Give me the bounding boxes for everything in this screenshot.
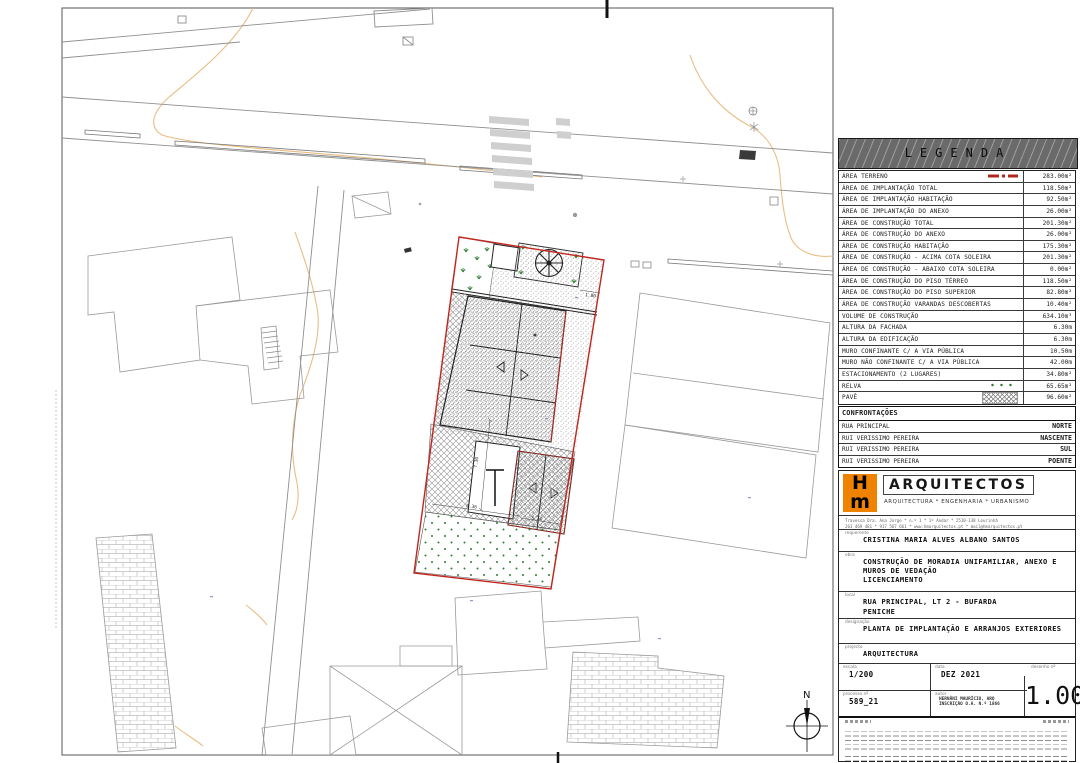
confrontacoes-row: RUI VERISSIMO PEREIRA POENTE xyxy=(839,456,1075,468)
legend-row: ESTACIONAMENTO (2 LUGARES) 34.80m² xyxy=(839,369,1075,381)
legend-row: VOLUME DE CONSTRUÇÃO 634.10m³ xyxy=(839,311,1075,323)
legend-header: LEGENDA xyxy=(838,138,1078,169)
legend-row-value: 283.00m² xyxy=(1023,171,1075,182)
desenho-label-cell: desenho nº xyxy=(1027,664,1077,676)
autor-cell: autor HERNÂNI MAURÍCIO, ARQ INSCRIÇÃO O.… xyxy=(931,690,1027,716)
legend-row-label: ÁREA DE CONSTRUÇÃO TOTAL xyxy=(839,218,1023,229)
legend-row: MURO CONFINANTE C/ A VIA PÚBLICA 10.50m xyxy=(839,346,1075,358)
legend-row-label: MURO CONFINANTE C/ A VIA PÚBLICA xyxy=(839,346,1023,357)
legend-row-value: 34.80m² xyxy=(1023,369,1075,380)
drawing-sheet: 7.30 8.36 3.34 1.80 N LEGENDA ÁREA TERRE… xyxy=(0,0,1080,763)
legend-row-label: ÁREA DE CONSTRUÇÃO DO PISO SUPERIOR xyxy=(839,287,1023,298)
confrontacoes-row: RUI VERISSIMO PEREIRA SUL xyxy=(839,444,1075,456)
legend-row-label: ÁREA DE IMPLANTAÇÃO TOTAL xyxy=(839,183,1023,194)
legend-row-value: 6.30m xyxy=(1023,322,1075,333)
legend-row-value: 6.30m xyxy=(1023,334,1075,345)
legend-row: MURO NÃO CONFINANTE C/ A VIA PÚBLICA 42.… xyxy=(839,357,1075,369)
legend-swatch xyxy=(982,392,1018,404)
legend-row-value: 10.40m² xyxy=(1023,299,1075,310)
legend-row: ÁREA DE CONSTRUÇÃO TOTAL 201.30m² xyxy=(839,218,1075,230)
legend-row-value: 634.10m³ xyxy=(1023,311,1075,322)
projecto-section: projecto ARQUITECTURA xyxy=(839,643,1075,663)
legend-row: ÁREA DE CONSTRUÇÃO DO ANEXO 26.00m² xyxy=(839,229,1075,241)
legend-row-value: 96.60m² xyxy=(1023,392,1075,404)
legend-row: ÁREA DE CONSTRUÇÃO DO PISO TÉRREO 118.50… xyxy=(839,276,1075,288)
requerente-section: requerente CRISTINA MARIA ALVES ALBANO S… xyxy=(839,529,1075,551)
legend-row: ALTURA DA EDIFICAÇÃO 6.30m xyxy=(839,334,1075,346)
data-cell: data DEZ 2021 xyxy=(931,664,1027,690)
legend-row-label: PAVÊ xyxy=(839,392,1023,404)
legend-row-value: 82.80m² xyxy=(1023,287,1075,298)
legend-row: ALTURA DA FACHADA 6.30m xyxy=(839,322,1075,334)
legend-row: PAVÊ 96.60m² xyxy=(839,392,1075,404)
legend-row: RELVA 65.65m² xyxy=(839,381,1075,393)
firm-tagline: ARQUITECTURA * ENGENHARIA * URBANISMO xyxy=(884,499,1029,505)
legend-row-label: ÁREA DE CONSTRUÇÃO VARANDAS DESCOBERTAS xyxy=(839,299,1023,310)
sheet-title: PLANTA DE IMPLANTAÇÃO E ARRANJOS EXTERIO… xyxy=(863,625,1069,635)
legend-row: ÁREA DE IMPLANTAÇÃO TOTAL 118.50m² xyxy=(839,183,1075,195)
legend-row-label: MURO NÃO CONFINANTE C/ A VIA PÚBLICA xyxy=(839,357,1023,368)
legend-row-label: ÁREA DE CONSTRUÇÃO - ACIMA COTA SOLEIRA xyxy=(839,252,1023,263)
title-block-column: LEGENDA ÁREA TERRENO 283.00m² ÁREA DE IM… xyxy=(838,0,1078,763)
escala-cell: escala 1/200 xyxy=(839,664,931,690)
designacao-section: designação PLANTA DE IMPLANTAÇÃO E ARRAN… xyxy=(839,618,1075,643)
fine-print-paragraph xyxy=(845,755,1069,763)
legend-row-value: 118.50m² xyxy=(1023,276,1075,287)
fine-print-paragraph xyxy=(845,731,1069,751)
micro-labels-row xyxy=(839,716,1075,728)
north-arrow: N xyxy=(786,690,828,752)
crosswalk xyxy=(489,116,571,191)
legend-row-value: 26.00m² xyxy=(1023,229,1075,240)
firm-contact: Travessa Dra. Ana Jorge * n.º 1 * 1º And… xyxy=(839,515,1075,529)
stairs-symbol xyxy=(261,326,283,370)
legend-row-label: ÁREA DE IMPLANTAÇÃO HABITAÇÃO xyxy=(839,194,1023,205)
legend-row-value: 92.50m² xyxy=(1023,194,1075,205)
legend-row-label: ÁREA DE CONSTRUÇÃO DO PISO TÉRREO xyxy=(839,276,1023,287)
legend-row-label: ÁREA TERRENO xyxy=(839,171,1023,182)
tree-symbol xyxy=(536,250,563,277)
legend-row-value: 65.65m² xyxy=(1023,381,1075,392)
legend-row-label: ÁREA DE IMPLANTAÇÃO DO ANEXO xyxy=(839,206,1023,217)
legend-row-label: ÁREA DE CONSTRUÇÃO DO ANEXO xyxy=(839,229,1023,240)
legend-row: ÁREA DE CONSTRUÇÃO HABITAÇÃO 175.30m² xyxy=(839,241,1075,253)
legend-row-value: 0.00m² xyxy=(1023,264,1075,275)
neighbour-parcels-right xyxy=(612,293,830,558)
legend-row-label: VOLUME DE CONSTRUÇÃO xyxy=(839,311,1023,322)
legend-row-value: 175.30m² xyxy=(1023,241,1075,252)
title-block: Hm ARQUITECTOS ARQUITECTURA * ENGENHARIA… xyxy=(838,470,1076,762)
legend-row-label: ESTACIONAMENTO (2 LUGARES) xyxy=(839,369,1023,380)
legend-row-value: 118.50m² xyxy=(1023,183,1075,194)
legend-row: ÁREA DE IMPLANTAÇÃO DO ANEXO 26.00m² xyxy=(839,206,1075,218)
firm-block: Hm ARQUITECTOS ARQUITECTURA * ENGENHARIA… xyxy=(839,471,1075,515)
north-label: N xyxy=(803,690,810,701)
confrontacoes-table: CONFRONTAÇÕES RUA PRINCIPAL NORTE RUI VE… xyxy=(838,406,1076,468)
firm-logo: Hm xyxy=(843,474,877,512)
legend-table: ÁREA TERRENO 283.00m² ÁREA DE IMPLANTAÇÃ… xyxy=(838,170,1076,405)
legend-row-value: 26.00m² xyxy=(1023,206,1075,217)
obra-section: obra CONSTRUÇÃO DE MORADIA UNIFAMILIAR, … xyxy=(839,551,1075,591)
legend-row-label: ALTURA DA FACHADA xyxy=(839,322,1023,333)
micro-label xyxy=(1043,720,1069,723)
legend-row: ÁREA DE CONSTRUÇÃO - ACIMA COTA SOLEIRA … xyxy=(839,252,1075,264)
firm-name: ARQUITECTOS xyxy=(883,475,1034,495)
legend-row-value: 10.50m xyxy=(1023,346,1075,357)
legend-row: ÁREA DE CONSTRUÇÃO VARANDAS DESCOBERTAS … xyxy=(839,299,1075,311)
micro-label xyxy=(845,720,871,723)
legend-row-value: 201.30m² xyxy=(1023,252,1075,263)
legend-swatch xyxy=(988,381,1018,390)
legend-row-value: 201.30m² xyxy=(1023,218,1075,229)
processo-cell: processo nº 589_21 xyxy=(839,690,931,716)
legend-row-value: 42.00m xyxy=(1023,357,1075,368)
confrontacoes-title: CONFRONTAÇÕES xyxy=(839,407,1075,421)
legend-row: ÁREA DE CONSTRUÇÃO DO PISO SUPERIOR 82.8… xyxy=(839,287,1075,299)
fine-print xyxy=(839,728,1075,763)
subject-parcel: 7.30 8.36 3.34 1.80 xyxy=(404,237,604,589)
sheet-number: 1.00 xyxy=(1024,676,1075,716)
local-section: local RUA PRINCIPAL, LT 2 - BUFARDA PENI… xyxy=(839,591,1075,618)
requerente-value: CRISTINA MARIA ALVES ALBANO SANTOS xyxy=(863,536,1069,546)
titleblock-grid: escala 1/200 data DEZ 2021 desenho nº pr… xyxy=(839,663,1075,716)
legend-row: ÁREA TERRENO 283.00m² xyxy=(839,171,1075,183)
legend-row: ÁREA DE IMPLANTAÇÃO HABITAÇÃO 92.50m² xyxy=(839,194,1075,206)
legend-row-label: ALTURA DA EDIFICAÇÃO xyxy=(839,334,1023,345)
legend-row: ÁREA DE CONSTRUÇÃO - ABAIXO COTA SOLEIRA… xyxy=(839,264,1075,276)
legend-row-label: ÁREA DE CONSTRUÇÃO - ABAIXO COTA SOLEIRA xyxy=(839,264,1023,275)
confrontacoes-row: RUA PRINCIPAL NORTE xyxy=(839,421,1075,433)
legend-row-label: RELVA xyxy=(839,381,1023,392)
legend-row-label: ÁREA DE CONSTRUÇÃO HABITAÇÃO xyxy=(839,241,1023,252)
neighbour-buildings-bottom xyxy=(96,534,724,755)
legend-swatch xyxy=(988,175,1018,178)
confrontacoes-row: RUI VERISSIMO PEREIRA NASCENTE xyxy=(839,433,1075,445)
